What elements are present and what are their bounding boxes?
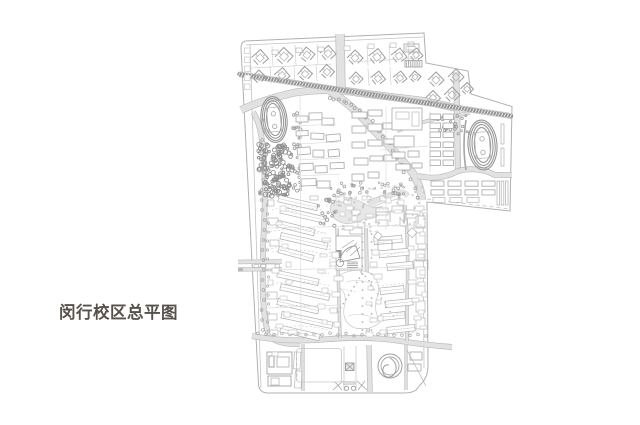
svg-text:闵行校区总平图: 闵行校区总平图 — [59, 302, 178, 322]
